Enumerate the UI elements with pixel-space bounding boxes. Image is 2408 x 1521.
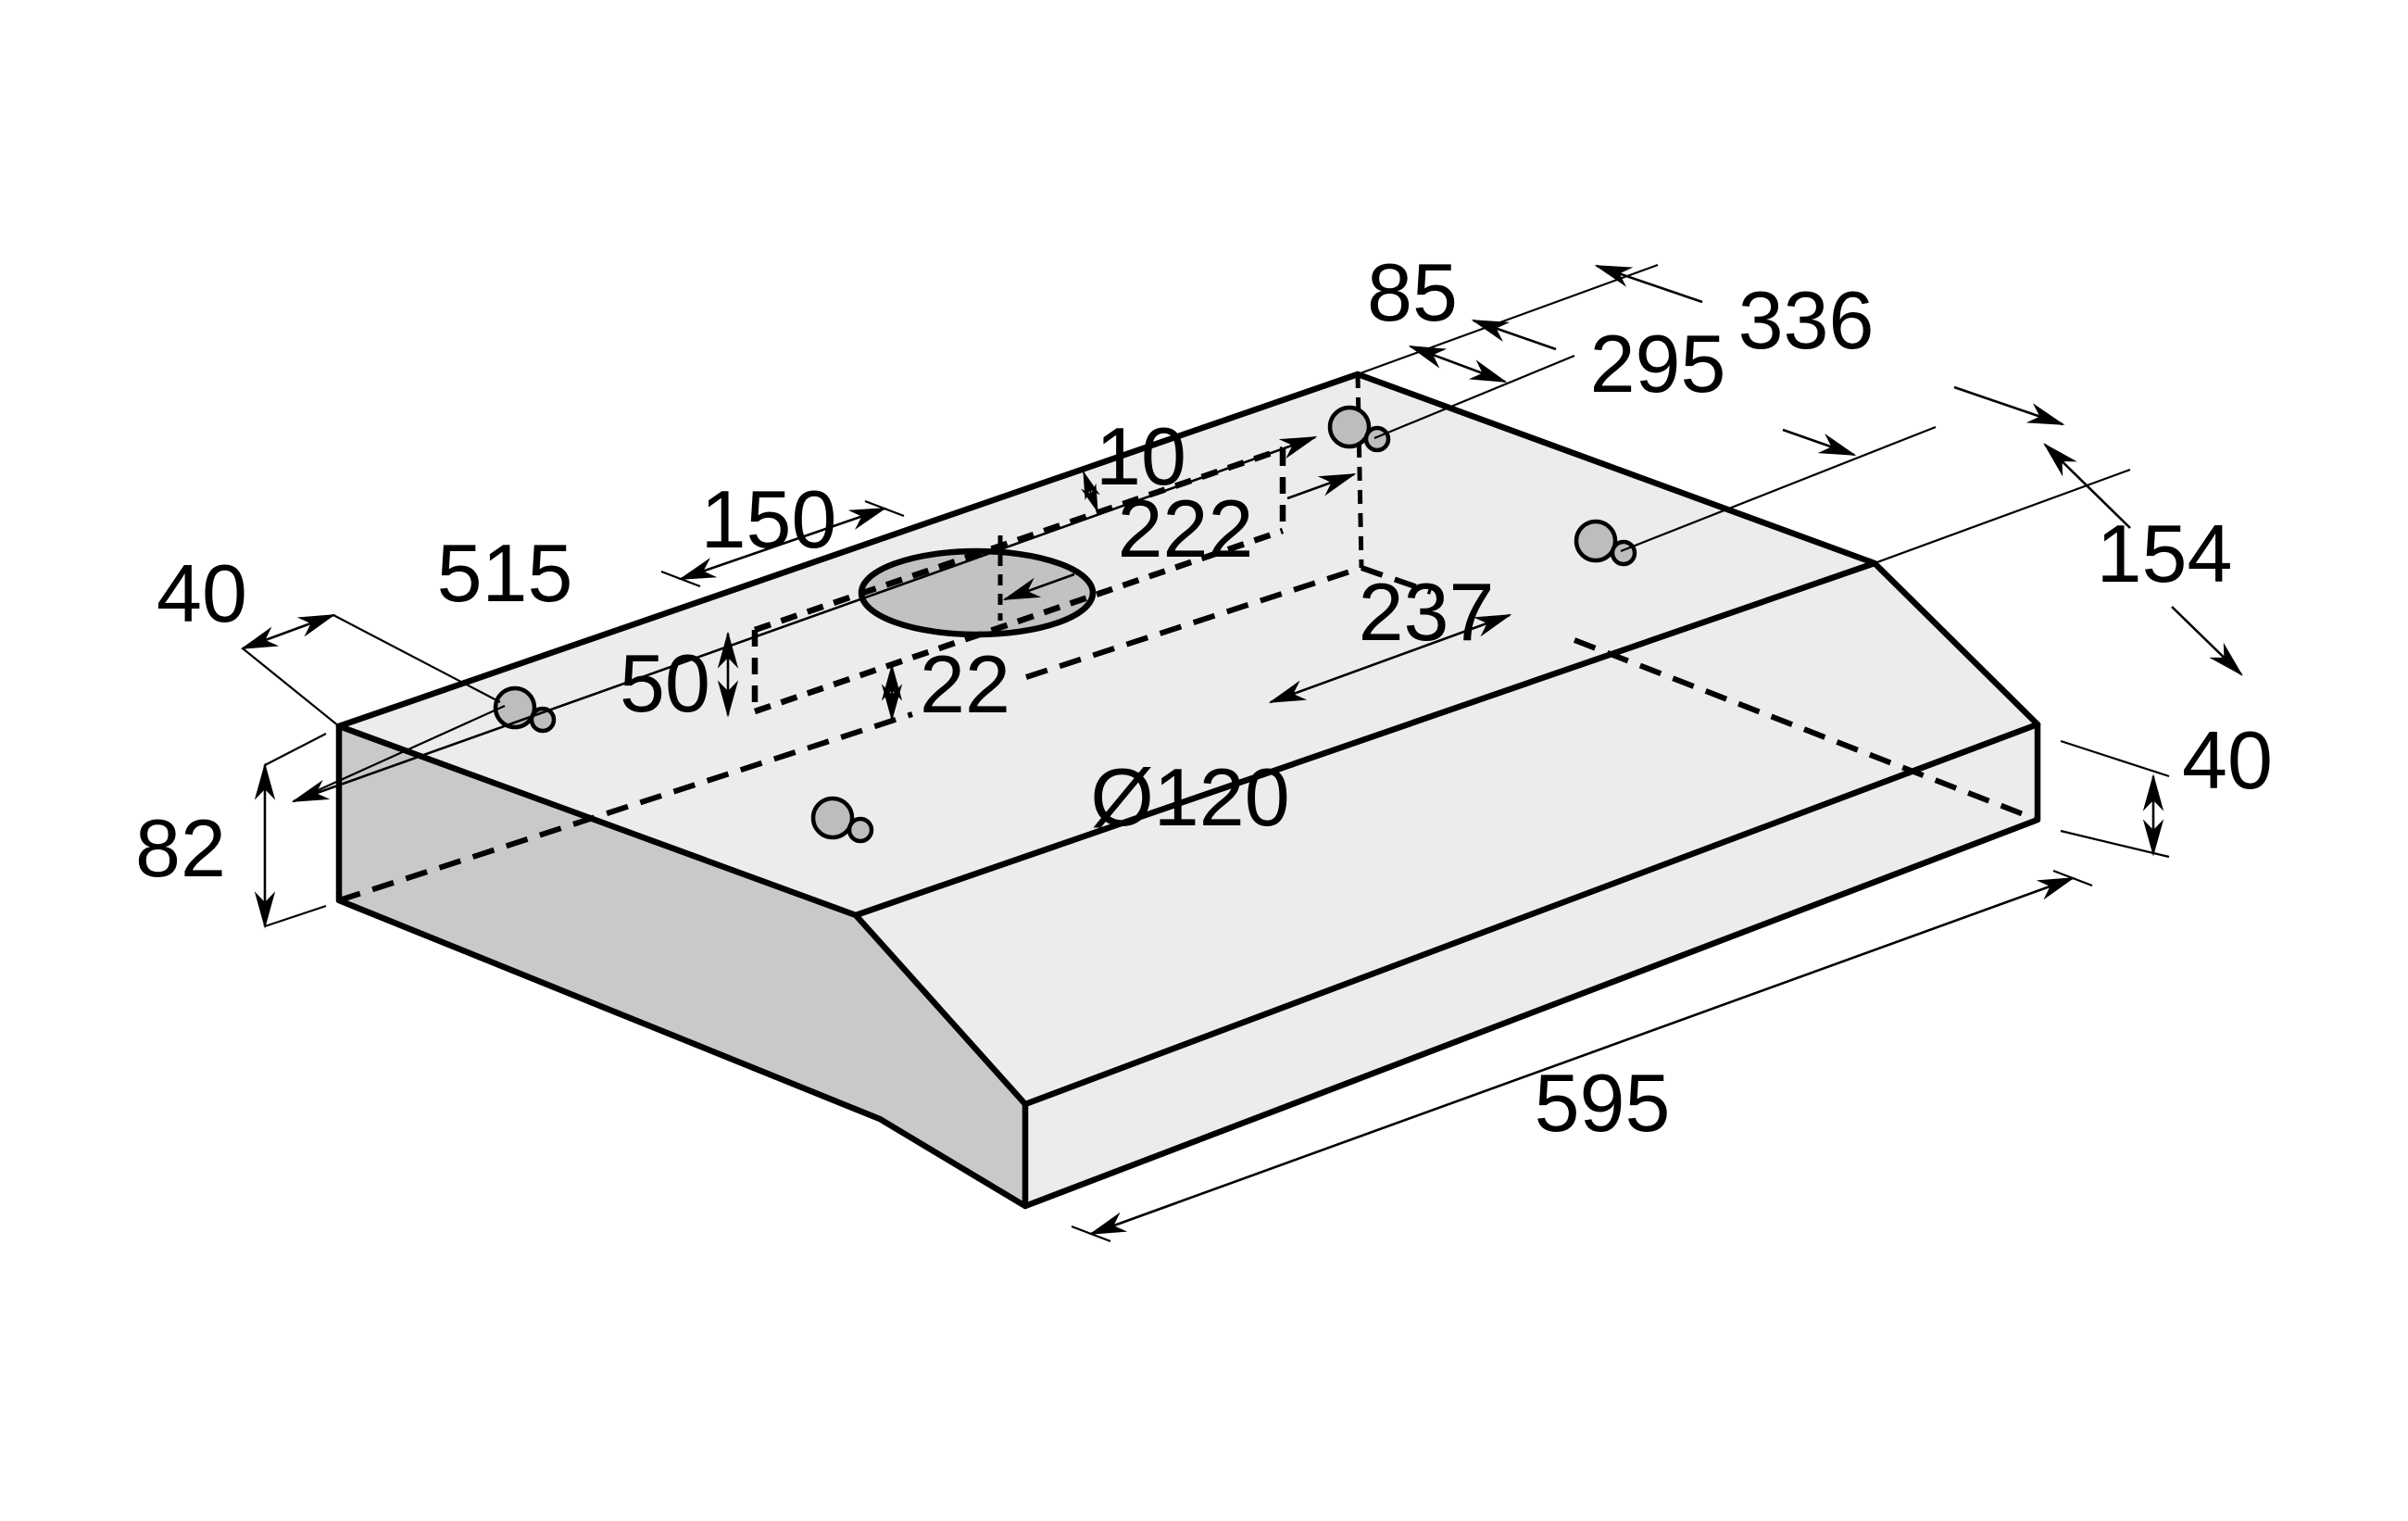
dim-label-515: 515 <box>437 527 573 619</box>
hood-dimension-diagram: 515 150 40 10 222 237 85 <box>0 0 2408 1521</box>
dim-label-40-left: 40 <box>157 547 247 639</box>
dim-diameter-120: Ø120 <box>1090 751 1289 843</box>
dim-label-595: 595 <box>1535 1057 1671 1149</box>
dim-label-50: 50 <box>620 637 710 729</box>
dim-label-222: 222 <box>1118 483 1254 574</box>
dim-label-40-right: 40 <box>2182 714 2273 806</box>
dim-label-82: 82 <box>135 802 226 894</box>
dim-label-22: 22 <box>920 638 1010 730</box>
dim-label-295: 295 <box>1590 318 1726 409</box>
dim-label-154: 154 <box>2097 508 2233 599</box>
diagram-page: 515 150 40 10 222 237 85 <box>0 0 2408 1521</box>
dim-label-diameter: Ø120 <box>1090 751 1289 843</box>
dim-label-237: 237 <box>1359 566 1495 658</box>
dim-label-150: 150 <box>701 473 837 565</box>
dim-label-85: 85 <box>1367 246 1458 338</box>
dim-label-336: 336 <box>1738 274 1875 366</box>
exhaust-hole <box>861 551 1093 635</box>
